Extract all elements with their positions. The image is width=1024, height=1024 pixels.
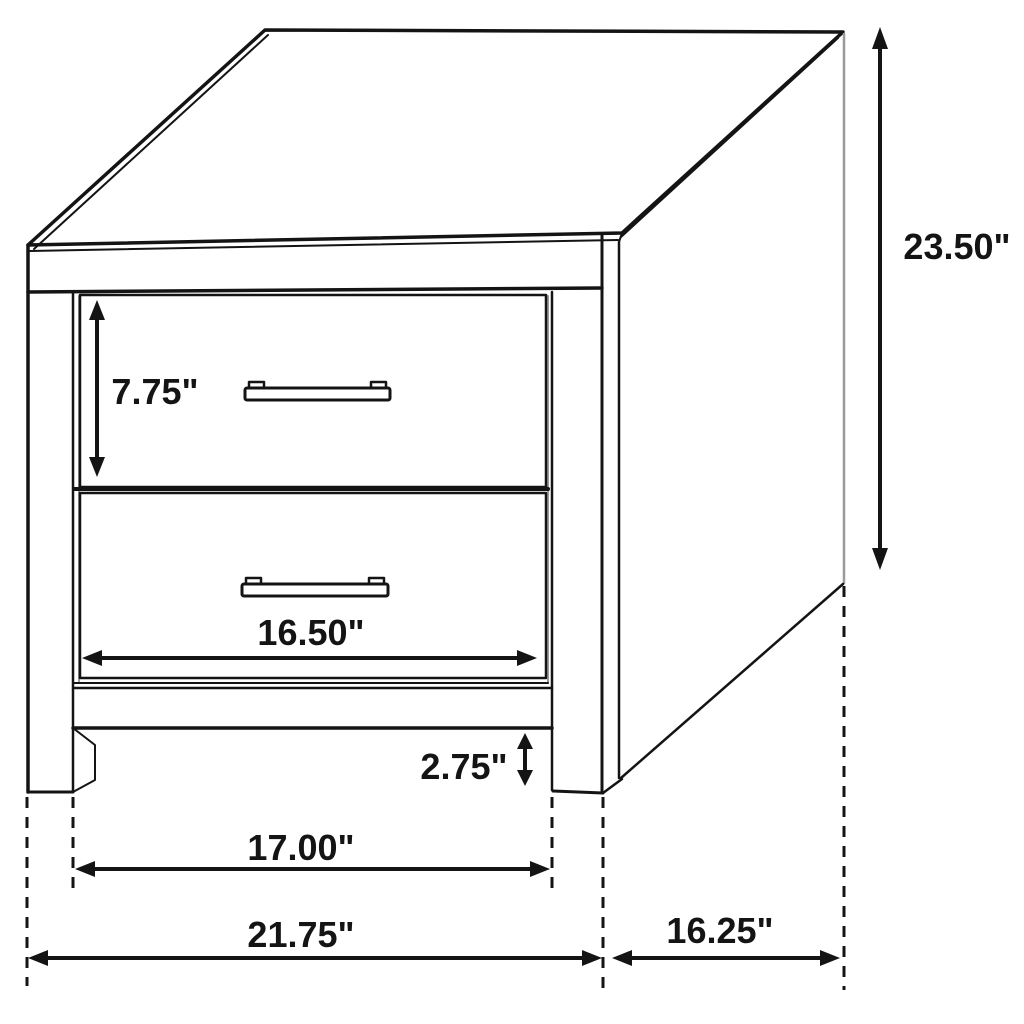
arrowhead-down-icon: [517, 770, 533, 786]
dimension-label-inner-width: 17.00": [247, 827, 354, 868]
nightstand-dimension-diagram: 23.50"7.75"16.50"2.75"17.00"21.75"16.25": [0, 0, 1024, 1024]
dimension-overall-width: 21.75": [28, 914, 602, 966]
right-leg-bottom-edge: [553, 791, 603, 793]
dimension-label-overall-height: 23.50": [903, 226, 1010, 267]
arrowhead-right-icon: [530, 861, 550, 877]
dimension-inner-width: 17.00": [75, 827, 550, 877]
arrowhead-right-icon: [582, 950, 602, 966]
dimension-leg-height: 2.75": [420, 733, 533, 787]
right-leg-corner-diagonal: [603, 779, 622, 793]
dimension-overall-depth: 16.25": [612, 910, 840, 966]
dimension-label-leg-height: 2.75": [420, 746, 507, 787]
arrowhead-left-icon: [28, 950, 48, 966]
dimension-overall-height: 23.50": [872, 27, 1011, 570]
handle-bar: [242, 584, 388, 596]
left-leg-side-face: [73, 728, 95, 792]
arrowhead-up-icon: [517, 733, 533, 749]
arrowhead-left-icon: [612, 950, 632, 966]
top-rail-bottom-edge: [28, 288, 602, 292]
arrowhead-up-icon: [872, 27, 888, 49]
dimension-label-overall-depth: 16.25": [666, 910, 773, 951]
arrowhead-right-icon: [820, 950, 840, 966]
dimension-label-overall-width: 21.75": [247, 914, 354, 955]
arrowhead-down-icon: [872, 548, 888, 570]
handle-bar: [245, 388, 390, 400]
arrowhead-left-icon: [75, 861, 95, 877]
diagram-canvas: 23.50"7.75"16.50"2.75"17.00"21.75"16.25": [0, 0, 1024, 1024]
dimension-label-top-drawer-height: 7.75": [111, 371, 198, 412]
top-face: [28, 30, 843, 245]
dimension-label-drawer-width: 16.50": [257, 612, 364, 653]
side-bottom-edge: [621, 584, 843, 778]
